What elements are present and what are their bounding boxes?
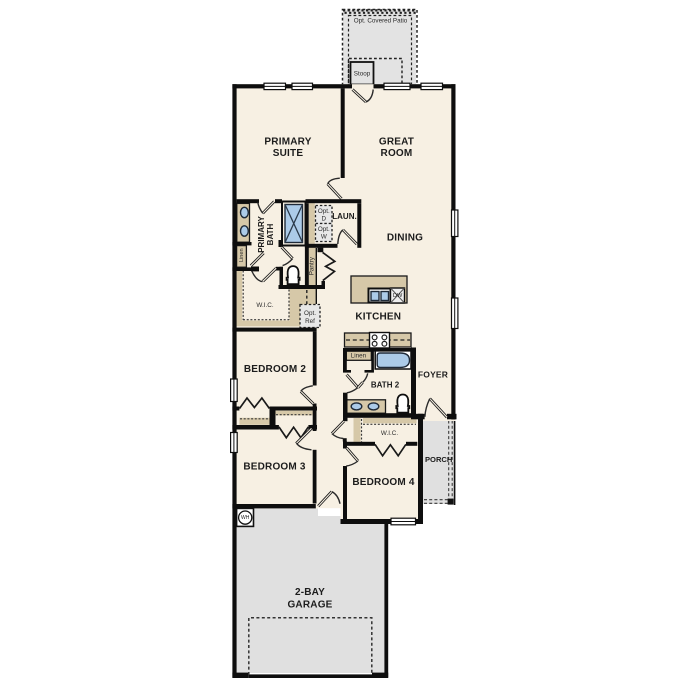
svg-text:WH: WH [241, 515, 250, 521]
svg-text:Linen: Linen [239, 248, 245, 262]
svg-text:DINING: DINING [387, 232, 423, 243]
svg-text:Opt.: Opt. [304, 310, 316, 317]
svg-text:Linen: Linen [351, 352, 367, 359]
svg-text:SUITE: SUITE [273, 148, 304, 159]
svg-text:GARAGE: GARAGE [287, 600, 332, 611]
svg-text:PRIMARY: PRIMARY [264, 137, 311, 148]
svg-text:BEDROOM 3: BEDROOM 3 [243, 461, 306, 472]
svg-text:DW: DW [393, 293, 403, 299]
svg-text:W.I.C.: W.I.C. [256, 302, 273, 309]
svg-text:PORCH: PORCH [425, 455, 452, 464]
svg-text:KITCHEN: KITCHEN [355, 312, 401, 323]
svg-text:ROOM: ROOM [381, 148, 413, 159]
svg-text:2-BAY: 2-BAY [295, 587, 325, 598]
svg-text:BATH: BATH [266, 223, 275, 245]
svg-text:Ref: Ref [305, 318, 315, 325]
svg-text:D: D [322, 216, 327, 223]
svg-text:Stoop: Stoop [354, 71, 371, 78]
svg-text:Opt. Covered Patio: Opt. Covered Patio [354, 18, 408, 25]
svg-text:Opt.: Opt. [318, 226, 330, 233]
svg-text:LAUN.: LAUN. [332, 212, 356, 221]
svg-text:FOYER: FOYER [418, 370, 448, 380]
svg-text:GREAT: GREAT [379, 137, 414, 148]
svg-text:BEDROOM 4: BEDROOM 4 [352, 477, 415, 488]
svg-text:Opt.: Opt. [318, 208, 330, 215]
svg-text:PRIMARY: PRIMARY [257, 216, 266, 253]
svg-text:W: W [321, 234, 327, 241]
svg-text:Pantry: Pantry [308, 256, 315, 275]
svg-text:BATH 2: BATH 2 [371, 381, 400, 390]
svg-text:BEDROOM 2: BEDROOM 2 [244, 364, 307, 375]
svg-text:W.I.C.: W.I.C. [381, 430, 398, 437]
